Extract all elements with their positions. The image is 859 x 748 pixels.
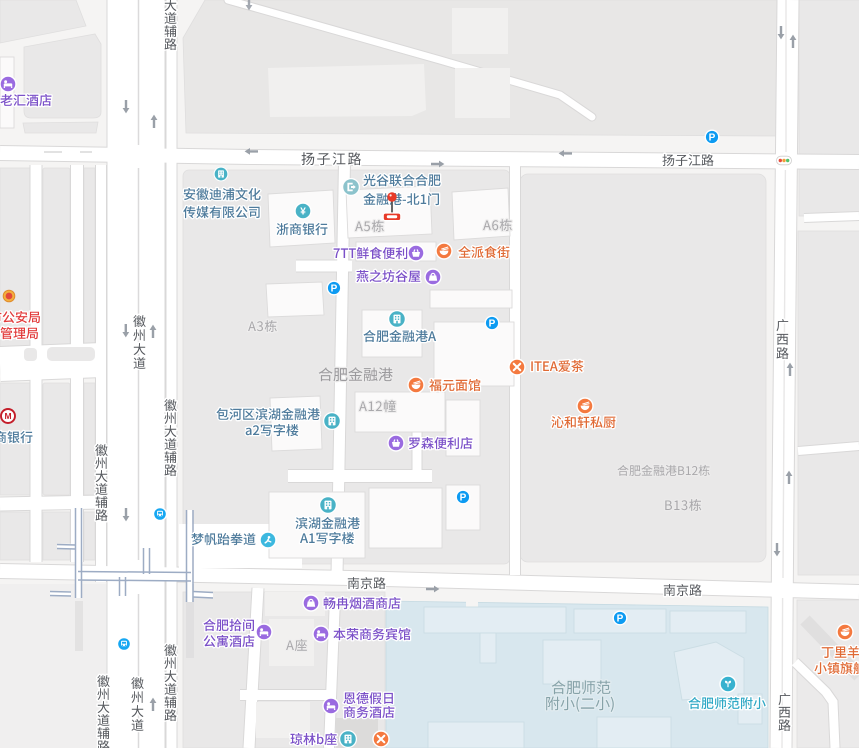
svg-text:M: M bbox=[4, 411, 11, 421]
svg-text:¥: ¥ bbox=[300, 207, 306, 218]
